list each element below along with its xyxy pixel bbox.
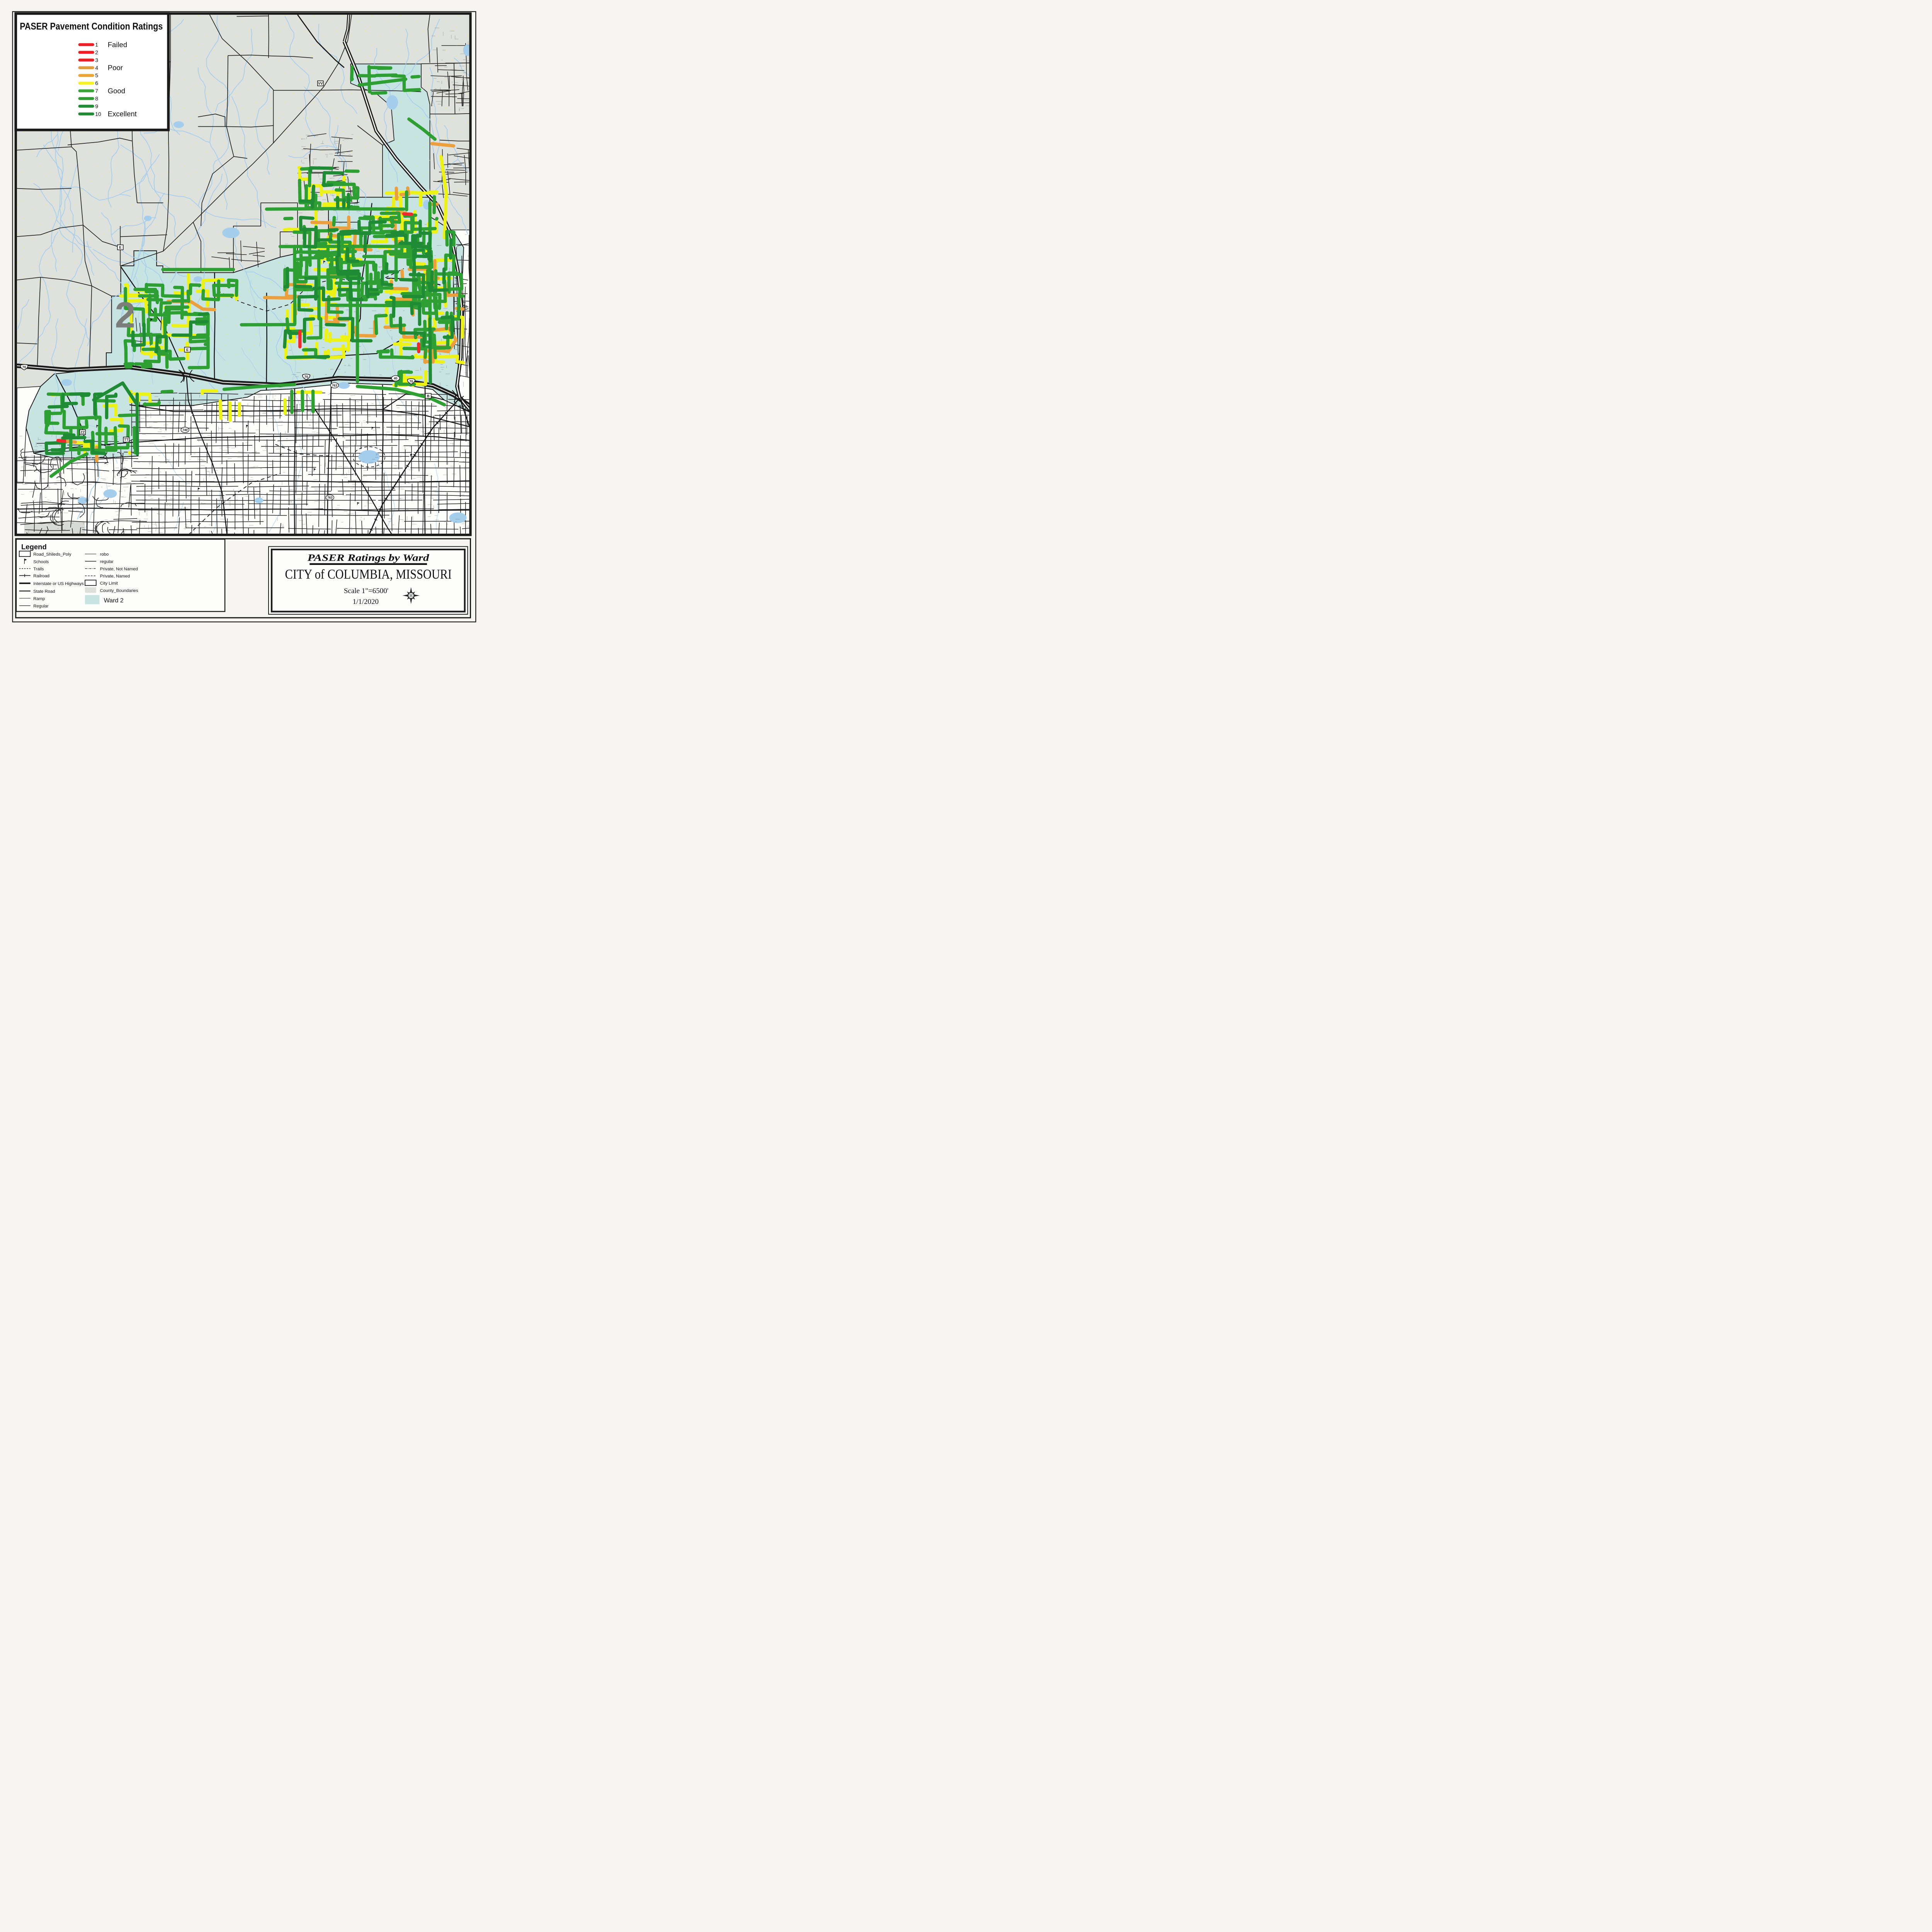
svg-text:9: 9 — [95, 103, 98, 109]
svg-text:Ramp: Ramp — [33, 597, 45, 601]
svg-text:8: 8 — [95, 95, 98, 102]
svg-text:City Limit: City Limit — [100, 581, 118, 586]
svg-text:Schools: Schools — [33, 560, 49, 564]
svg-text:5: 5 — [95, 72, 98, 78]
svg-text:Ward 2: Ward 2 — [104, 597, 124, 604]
svg-text:ZZ: ZZ — [80, 430, 85, 434]
svg-text:E: E — [119, 245, 121, 249]
svg-text:6: 6 — [95, 80, 98, 86]
svg-text:Private, Not Named: Private, Not Named — [100, 567, 138, 571]
svg-text:County_Boundaries: County_Boundaries — [100, 588, 138, 593]
svg-text:robo: robo — [100, 552, 109, 557]
svg-text:State Road: State Road — [33, 589, 55, 594]
svg-text:1: 1 — [95, 42, 98, 48]
svg-text:Poor: Poor — [108, 64, 123, 72]
svg-text:Failed: Failed — [108, 41, 127, 49]
svg-text:Excellent: Excellent — [108, 110, 137, 118]
svg-text:70: 70 — [410, 379, 413, 383]
svg-text:Legend: Legend — [21, 543, 47, 551]
svg-text:4: 4 — [95, 65, 98, 71]
svg-text:Private, Named: Private, Named — [100, 574, 130, 579]
svg-text:VV: VV — [318, 82, 323, 85]
svg-text:Trails: Trails — [33, 567, 44, 571]
svg-text:Good: Good — [108, 87, 125, 95]
svg-text:E: E — [186, 348, 189, 352]
svg-text:40: 40 — [394, 377, 397, 380]
svg-text:CITY of COLUMBIA, MISSOURI: CITY of COLUMBIA, MISSOURI — [285, 567, 452, 582]
svg-text:B: B — [427, 394, 430, 398]
svg-text:Railroad: Railroad — [33, 574, 49, 578]
svg-text:Regular: Regular — [33, 604, 49, 609]
svg-text:70: 70 — [304, 375, 308, 379]
svg-text:Interstate or US Highways: Interstate or US Highways — [33, 582, 84, 586]
svg-text:10: 10 — [95, 111, 101, 117]
svg-text:7: 7 — [95, 88, 98, 94]
svg-text:regular: regular — [100, 560, 114, 564]
svg-text:1/1/2020: 1/1/2020 — [352, 598, 379, 606]
svg-text:2: 2 — [115, 295, 135, 336]
svg-text:PASER Pavement Condition Ratin: PASER Pavement Condition Ratings — [20, 21, 163, 32]
svg-text:2: 2 — [95, 49, 98, 55]
svg-text:TT: TT — [124, 438, 128, 442]
svg-text:740: 740 — [182, 429, 188, 432]
svg-text:PASER Ratings by Ward: PASER Ratings by Ward — [307, 552, 429, 563]
svg-text:3: 3 — [95, 57, 98, 63]
svg-text:763: 763 — [332, 384, 337, 387]
svg-text:Scale 1"=6500': Scale 1"=6500' — [344, 587, 388, 595]
svg-text:763: 763 — [327, 496, 333, 500]
svg-text:70: 70 — [22, 365, 26, 369]
svg-text:Road_Shileds_Poly: Road_Shileds_Poly — [33, 552, 71, 557]
